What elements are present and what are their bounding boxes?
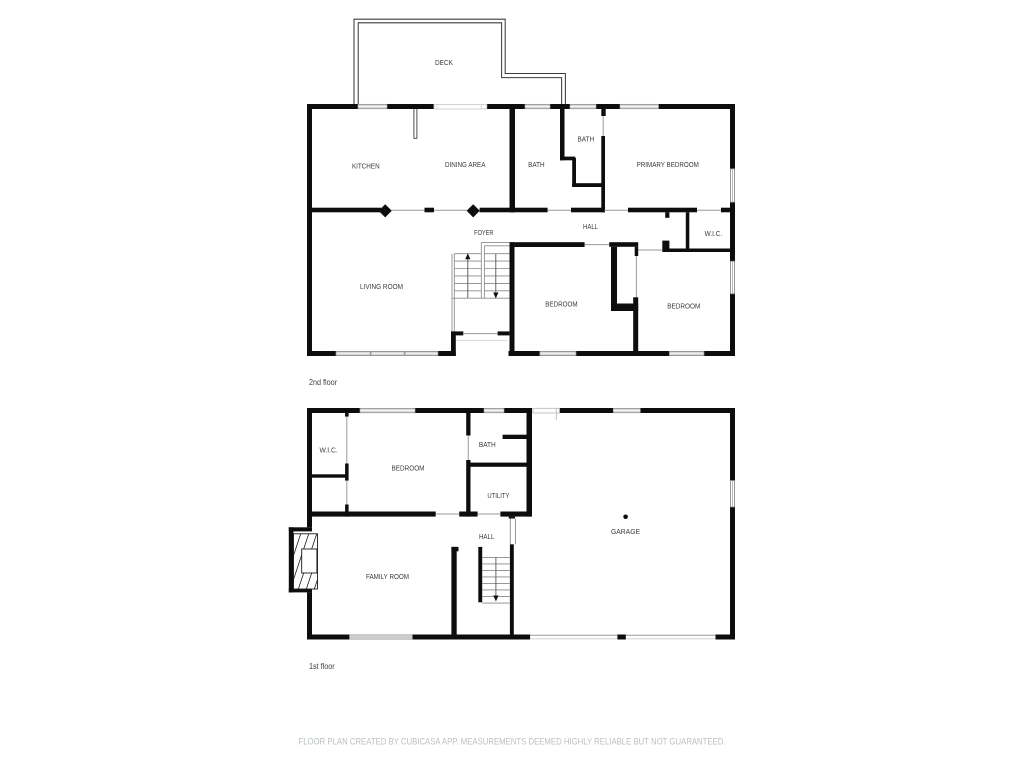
svg-text:BATH: BATH bbox=[578, 134, 595, 143]
svg-text:DECK: DECK bbox=[435, 58, 453, 67]
svg-text:BATH: BATH bbox=[528, 160, 545, 169]
svg-text:HALL: HALL bbox=[583, 222, 598, 231]
svg-text:BEDROOM: BEDROOM bbox=[667, 301, 700, 310]
svg-text:FOYER: FOYER bbox=[474, 228, 493, 237]
svg-text:BEDROOM: BEDROOM bbox=[392, 464, 425, 473]
svg-text:GARAGE: GARAGE bbox=[611, 527, 640, 536]
svg-text:UTILITY: UTILITY bbox=[487, 491, 509, 500]
svg-text:BEDROOM: BEDROOM bbox=[545, 299, 577, 308]
svg-text:LIVING ROOM: LIVING ROOM bbox=[360, 282, 403, 291]
svg-text:PRIMARY BEDROOM: PRIMARY BEDROOM bbox=[637, 160, 699, 169]
svg-text:FAMILY ROOM: FAMILY ROOM bbox=[366, 572, 409, 581]
svg-text:FLOOR PLAN CREATED BY CUBICASA: FLOOR PLAN CREATED BY CUBICASA APP. MEAS… bbox=[299, 737, 726, 748]
svg-text:HALL: HALL bbox=[479, 532, 495, 541]
svg-text:BATH: BATH bbox=[479, 440, 496, 449]
svg-text:W.I.C.: W.I.C. bbox=[705, 229, 723, 238]
svg-text:W.I.C.: W.I.C. bbox=[319, 446, 337, 455]
svg-text:DINING AREA: DINING AREA bbox=[445, 160, 486, 169]
svg-text:KITCHEN: KITCHEN bbox=[352, 161, 380, 170]
svg-text:1st floor: 1st floor bbox=[309, 661, 335, 671]
svg-text:2nd floor: 2nd floor bbox=[309, 377, 337, 387]
